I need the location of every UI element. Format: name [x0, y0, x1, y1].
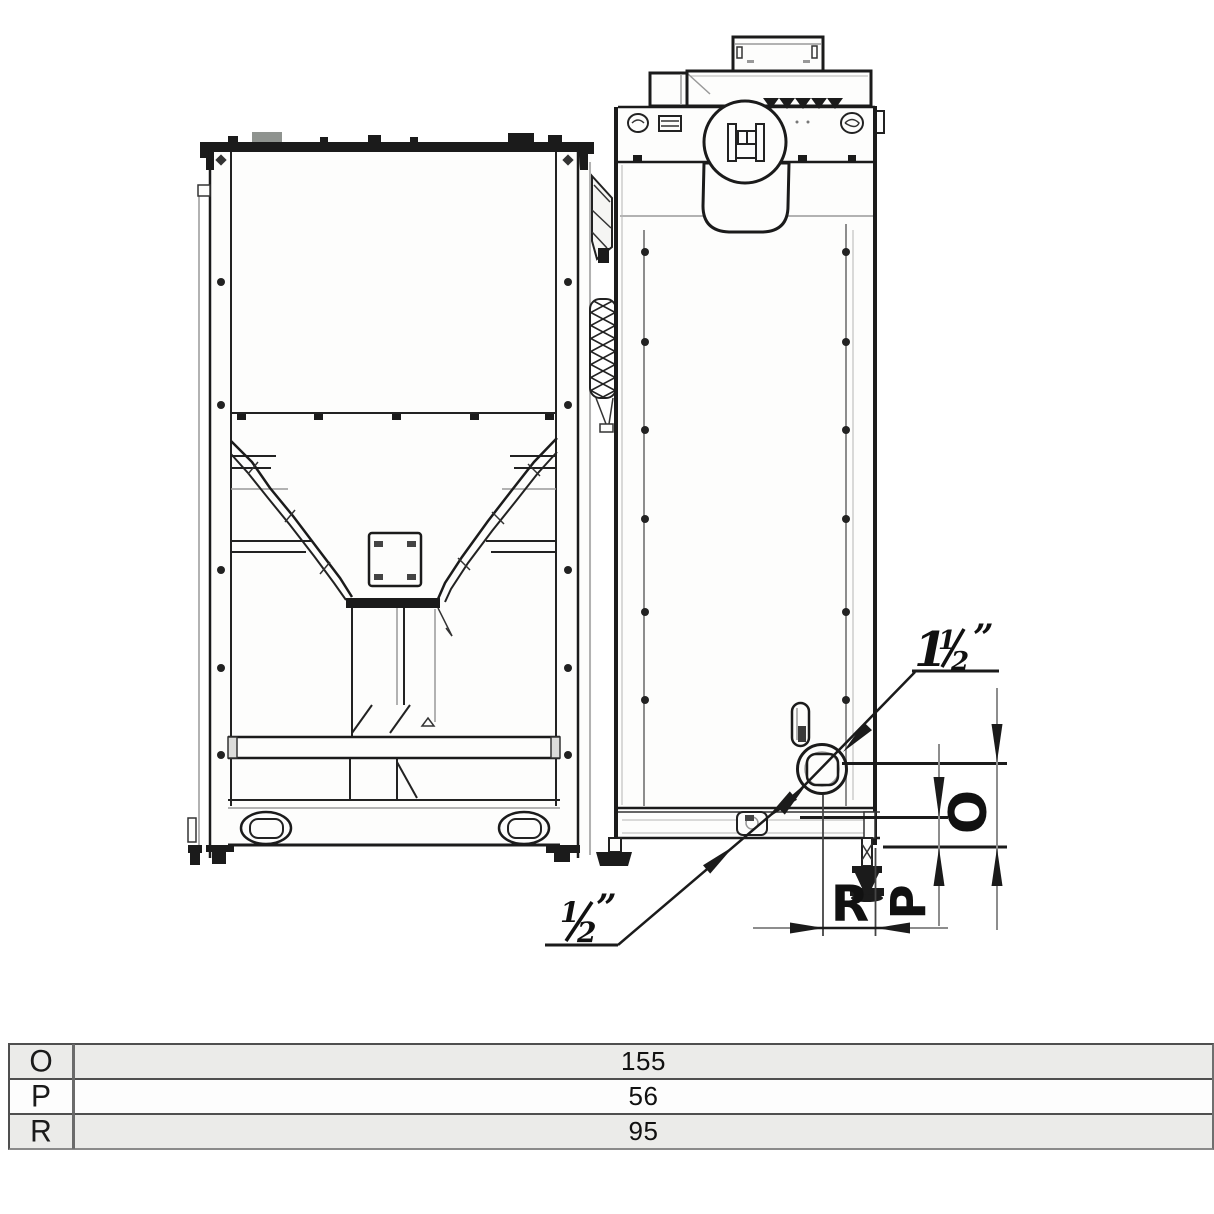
dim-label-R: R [831, 875, 870, 933]
flue-outlet [733, 37, 823, 71]
dim-table-row-O: O 155 [10, 1045, 1212, 1080]
dim-table-row-P: P 56 [10, 1080, 1212, 1115]
boiler-technical-drawing: O P R 1 1 2 [0, 0, 1214, 1040]
auger-feed-assembly [588, 176, 618, 432]
dim-P: P [881, 744, 945, 926]
dim-O: O [939, 688, 1003, 930]
vent-grille [659, 116, 681, 131]
dim-label-O: O [939, 790, 999, 834]
dim-table-row-R: R 95 [10, 1115, 1212, 1148]
sensor-well [792, 703, 809, 746]
dim-table-label-P: P [10, 1079, 75, 1114]
callout-0-5-inch: 1 2 ” [545, 887, 618, 949]
dim-table-value-P: 56 [75, 1081, 1212, 1112]
callout-1-5-inch: 1 1 2 ” [912, 617, 999, 678]
dim-table-label-O: O [10, 1044, 75, 1079]
callout-0-5-quote: ” [596, 887, 617, 929]
base-cross-beam [228, 737, 560, 758]
callout-1-5-quote: ” [973, 617, 994, 659]
fan-housing [703, 101, 789, 232]
hopper-access-door [369, 533, 421, 586]
dim-label-P: P [881, 884, 937, 919]
dim-table-value-R: 95 [75, 1116, 1212, 1147]
left-knob [628, 114, 648, 132]
callout-1-5-den: 2 [950, 647, 969, 677]
dim-table-label-R: R [10, 1114, 75, 1149]
dim-table-value-O: 155 [75, 1046, 1212, 1077]
dimension-table: O 155 P 56 R 95 [8, 1043, 1214, 1150]
drawing-page: O P R 1 1 2 [0, 0, 1214, 1214]
boiler-left-foot [596, 838, 632, 866]
callout-0-5-den: 2 [576, 916, 596, 949]
boiler-side-view [596, 37, 884, 902]
hopper-rear-view [188, 132, 594, 865]
